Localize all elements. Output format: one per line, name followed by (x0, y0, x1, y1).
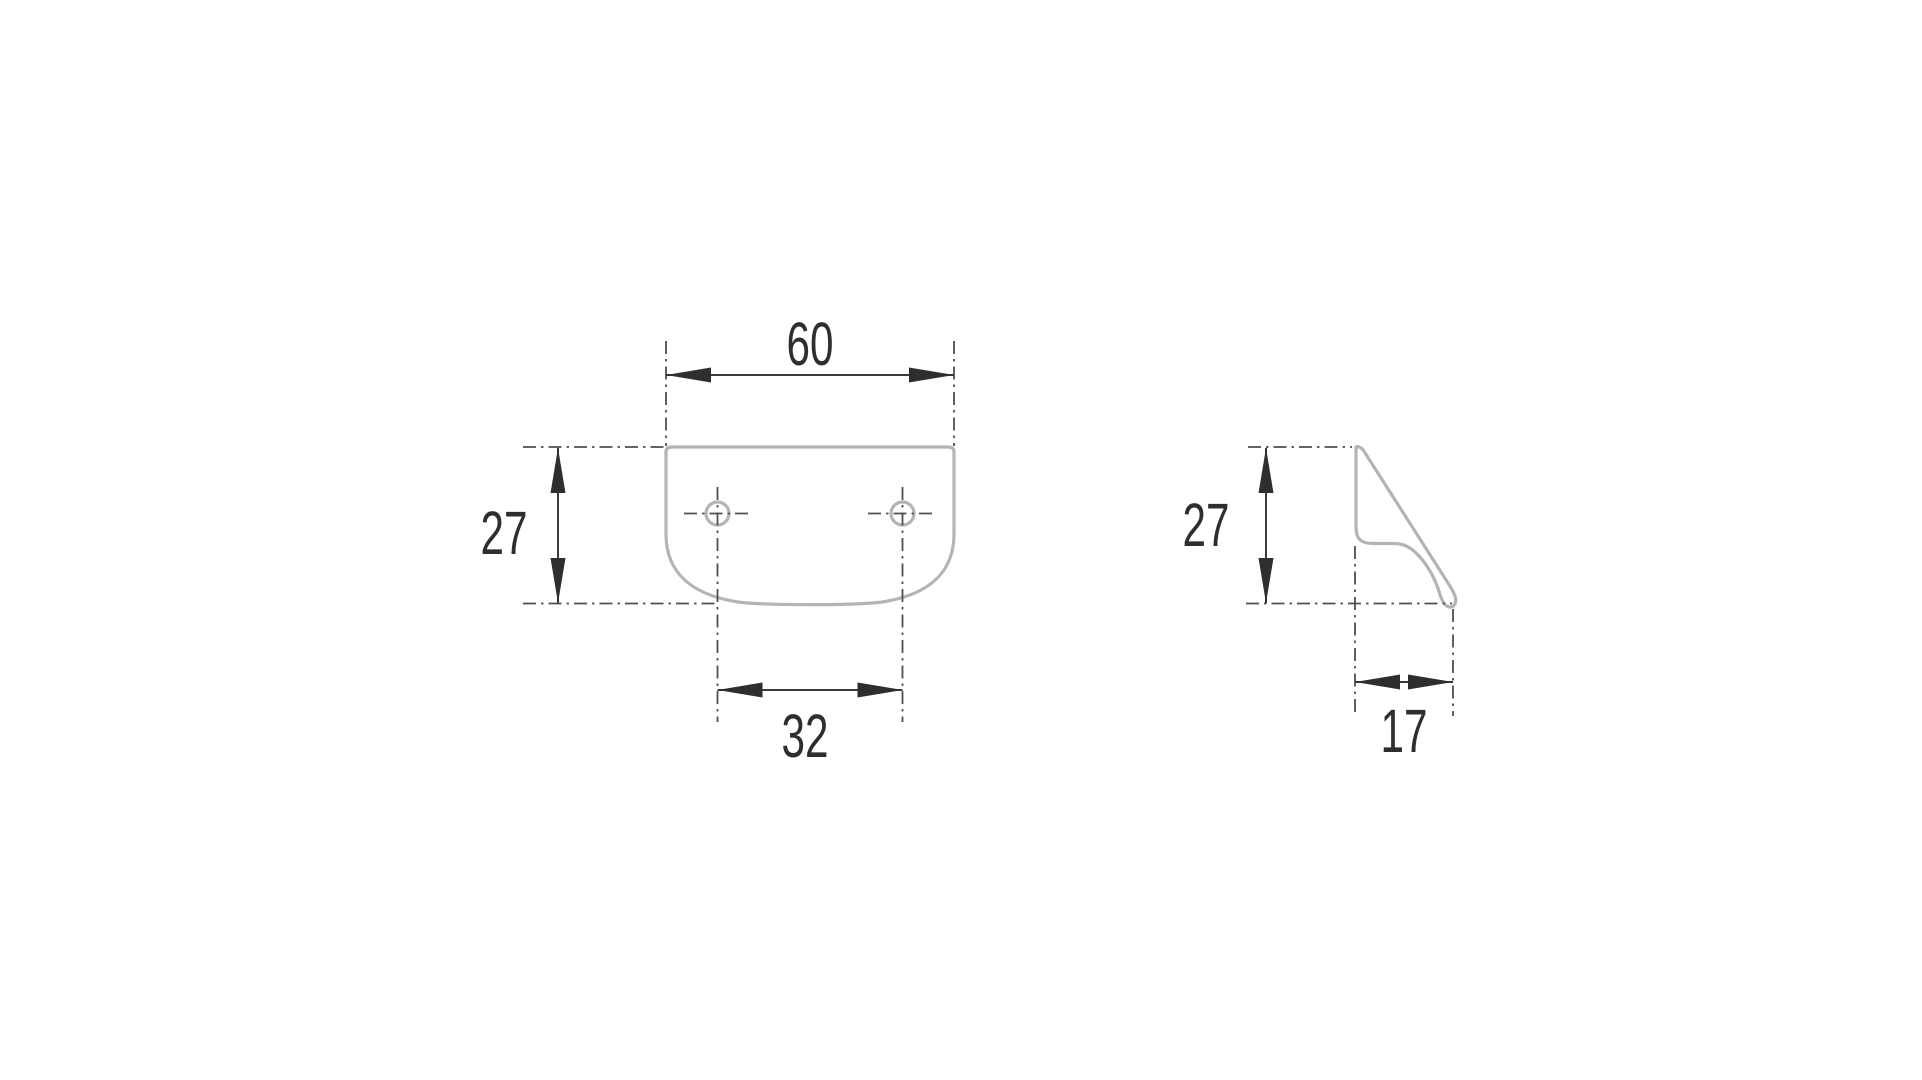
arrowhead-down (1259, 558, 1274, 603)
arrowhead-left (1355, 675, 1400, 690)
dimension-hole-spacing-32: 32 (718, 683, 903, 771)
side-view: 27 17 (1183, 447, 1456, 765)
arrowhead-right (909, 368, 954, 383)
arrowhead-right (858, 683, 903, 698)
front-view: 60 27 32 (481, 310, 955, 770)
dimension-depth-17: 17 (1355, 546, 1453, 765)
dimension-height-27-front: 27 (481, 447, 717, 604)
arrowhead-down (551, 558, 566, 603)
plate-outline (666, 447, 954, 605)
dimension-value-depth: 17 (1381, 697, 1428, 765)
arrowhead-up (551, 448, 566, 493)
arrowhead-right (1408, 675, 1453, 690)
dimension-value-width: 60 (787, 310, 834, 378)
dimension-width-60: 60 (666, 310, 954, 446)
arrowhead-left (666, 368, 711, 383)
arrowhead-up (1259, 448, 1274, 493)
arrowhead-left (718, 683, 763, 698)
profile-outline (1356, 447, 1456, 607)
technical-drawing-canvas: 60 27 32 27 (0, 0, 1922, 1080)
dimension-value-hole-spacing: 32 (782, 702, 829, 770)
dimension-value-height: 27 (481, 499, 528, 567)
dimension-value-height: 27 (1183, 491, 1230, 559)
